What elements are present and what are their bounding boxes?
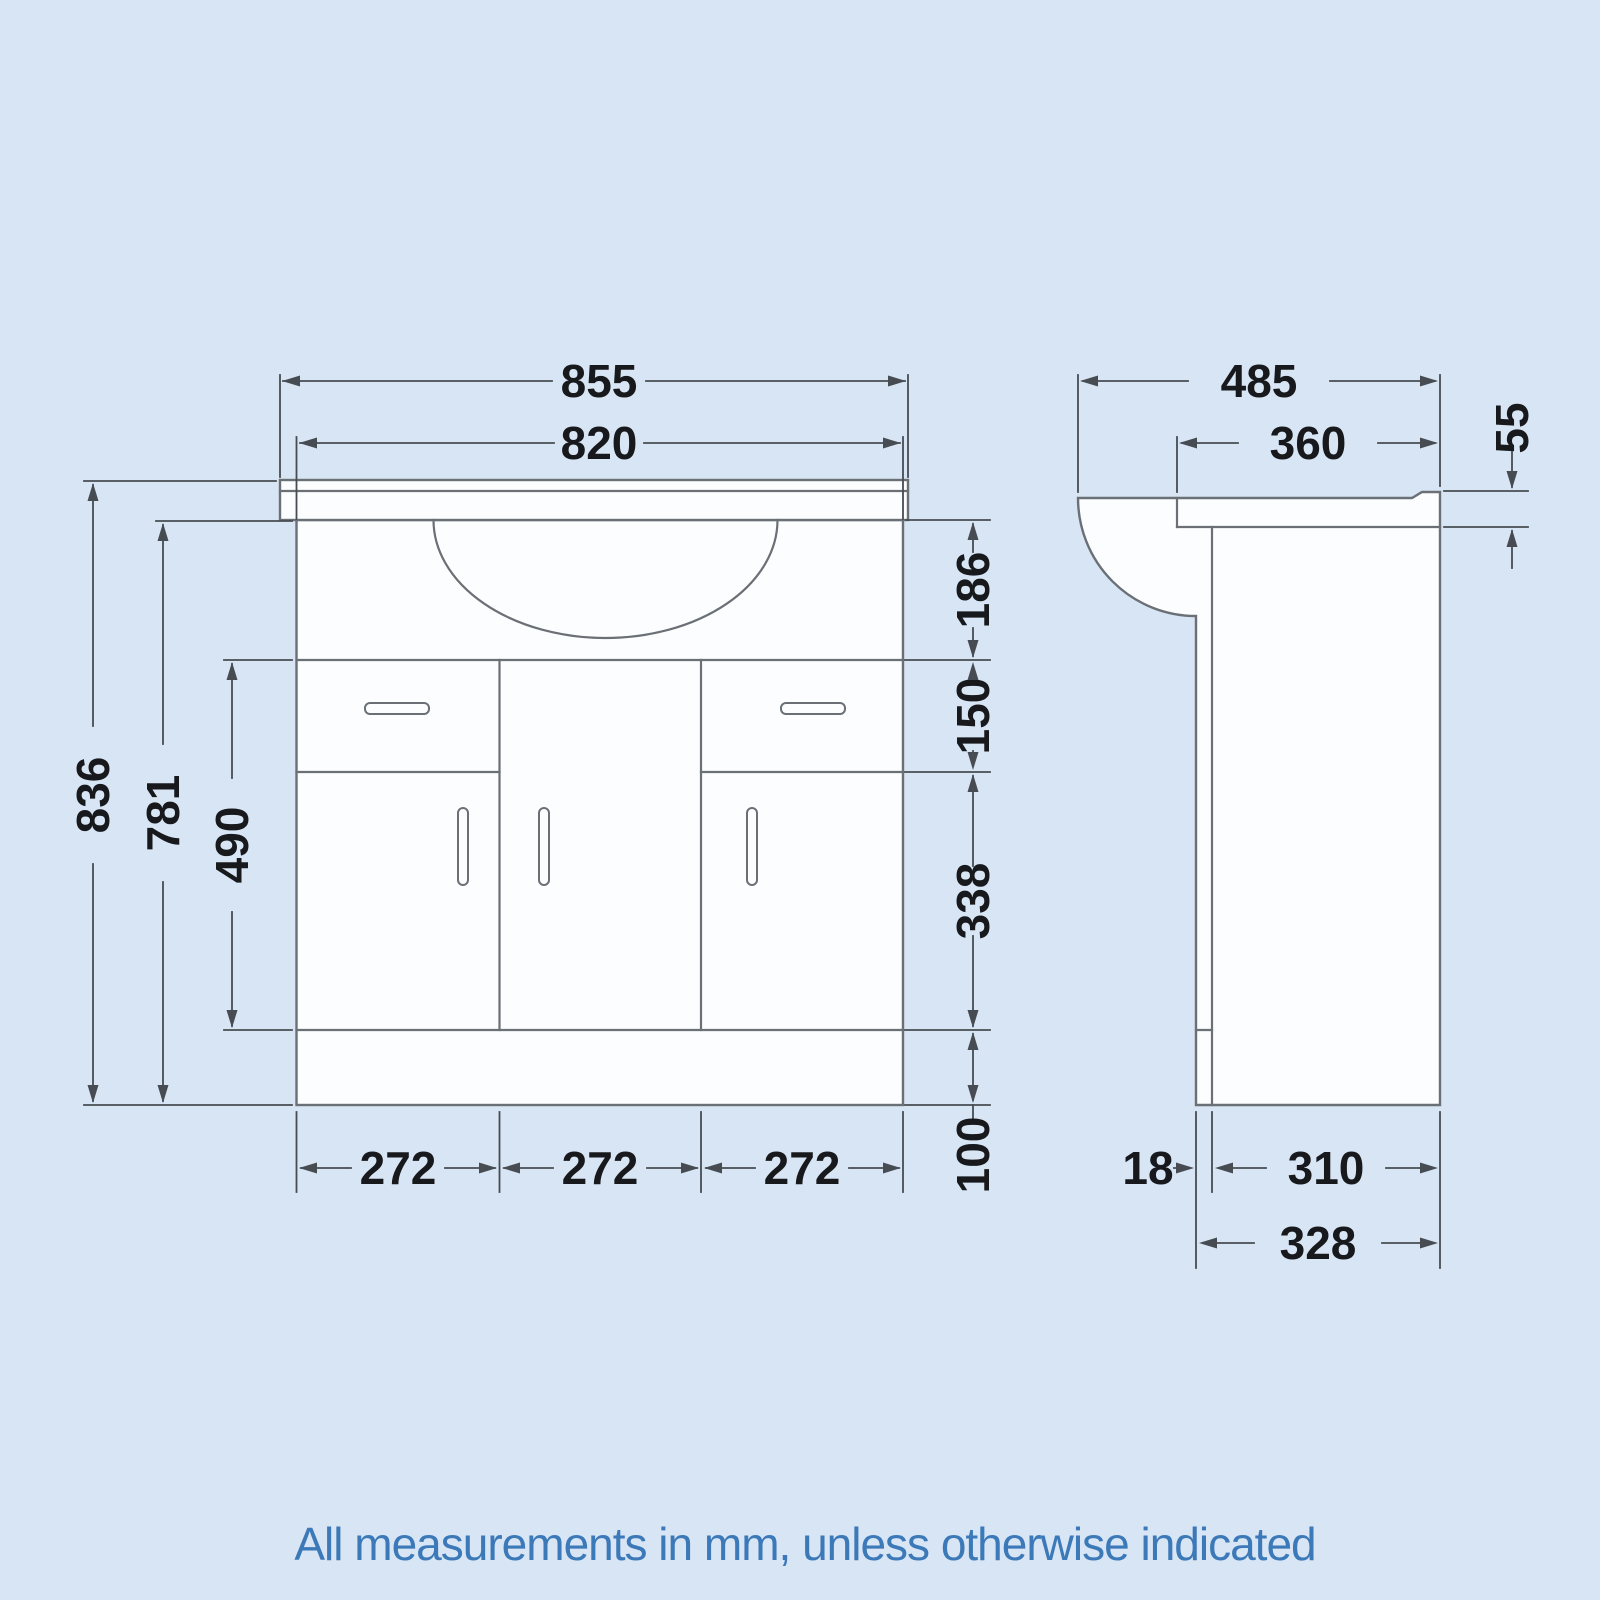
dim-worktop-depth: 360 <box>1177 417 1435 492</box>
dim-label-18: 18 <box>1122 1142 1173 1194</box>
dim-label-855: 855 <box>561 355 638 407</box>
right-door-handle <box>747 808 757 885</box>
center-door-handle <box>539 808 549 885</box>
dim-label-310: 310 <box>1288 1142 1365 1194</box>
dim-label-360: 360 <box>1270 417 1347 469</box>
side-view <box>1078 492 1440 1105</box>
dim-label-272-1: 272 <box>360 1142 437 1194</box>
side-profile-outline <box>1078 492 1440 1105</box>
dim-label-55: 55 <box>1486 402 1538 453</box>
left-door-handle <box>458 808 468 885</box>
dim-label-100: 100 <box>947 1117 999 1194</box>
dim-label-485: 485 <box>1221 355 1298 407</box>
dim-label-836: 836 <box>67 757 119 834</box>
dim-label-781: 781 <box>137 775 189 852</box>
front-countertop <box>280 480 908 520</box>
dim-right-chain: 186 150 338 100 <box>905 520 999 1193</box>
dim-label-490: 490 <box>206 807 258 884</box>
dim-bay-widths: 272 272 272 <box>297 1112 904 1194</box>
measurements-note: All measurements in mm, unless otherwise… <box>294 1518 1315 1570</box>
dim-doors-drawers-height: 490 <box>206 660 292 1030</box>
dim-side-bottom: 18 310 328 <box>1122 1112 1440 1269</box>
dim-label-150: 150 <box>947 678 999 755</box>
right-drawer-handle <box>781 703 845 714</box>
dim-overall-depth: 485 <box>1078 355 1440 492</box>
front-view <box>280 480 908 1105</box>
left-drawer-handle <box>365 703 429 714</box>
dim-label-820: 820 <box>561 417 638 469</box>
front-cabinet-body <box>297 520 904 1105</box>
dim-worktop-thickness: 55 <box>1444 402 1538 568</box>
dim-label-186: 186 <box>947 552 999 629</box>
dim-label-338: 338 <box>947 863 999 940</box>
dim-label-328: 328 <box>1280 1217 1357 1269</box>
dim-label-272-3: 272 <box>764 1142 841 1194</box>
technical-drawing: 855 820 836 781 490 <box>0 0 1600 1600</box>
dim-label-272-2: 272 <box>562 1142 639 1194</box>
